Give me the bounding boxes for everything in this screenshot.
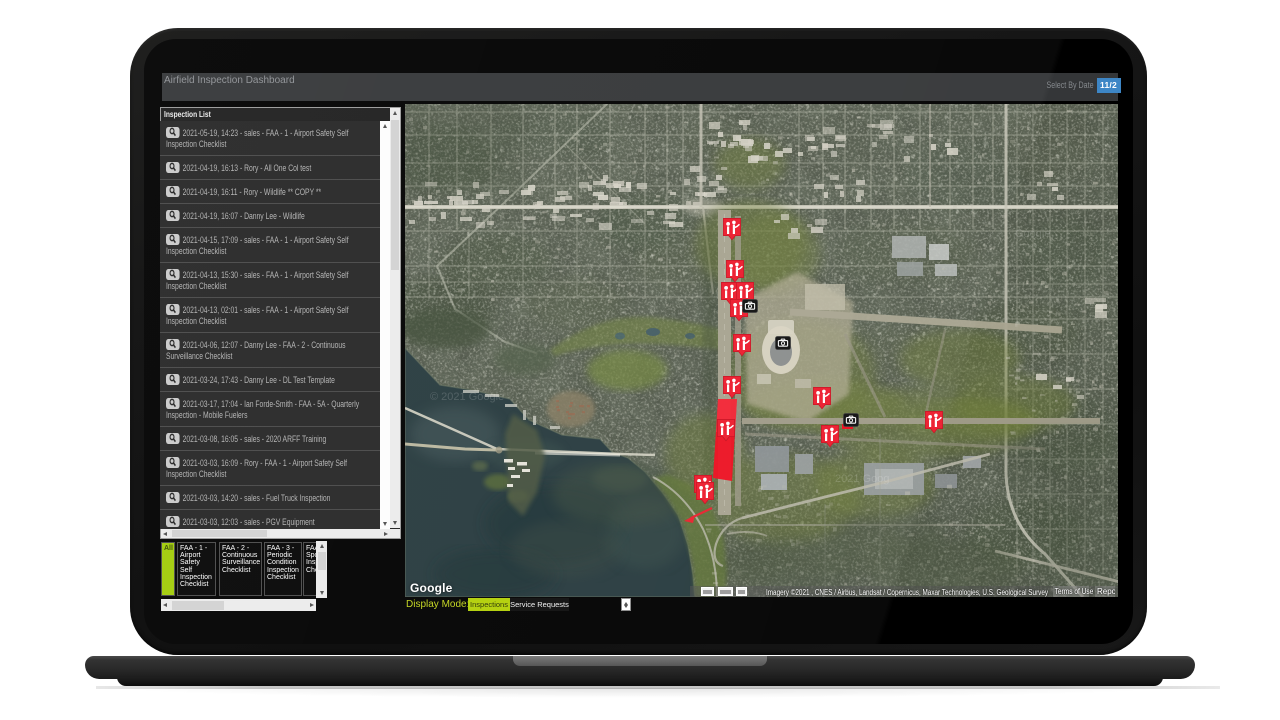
svg-text:Google: Google: [1015, 228, 1050, 240]
svg-text:2021 Goog: 2021 Goog: [835, 473, 889, 485]
svg-text:© 2021 Google: © 2021 Google: [430, 391, 504, 403]
